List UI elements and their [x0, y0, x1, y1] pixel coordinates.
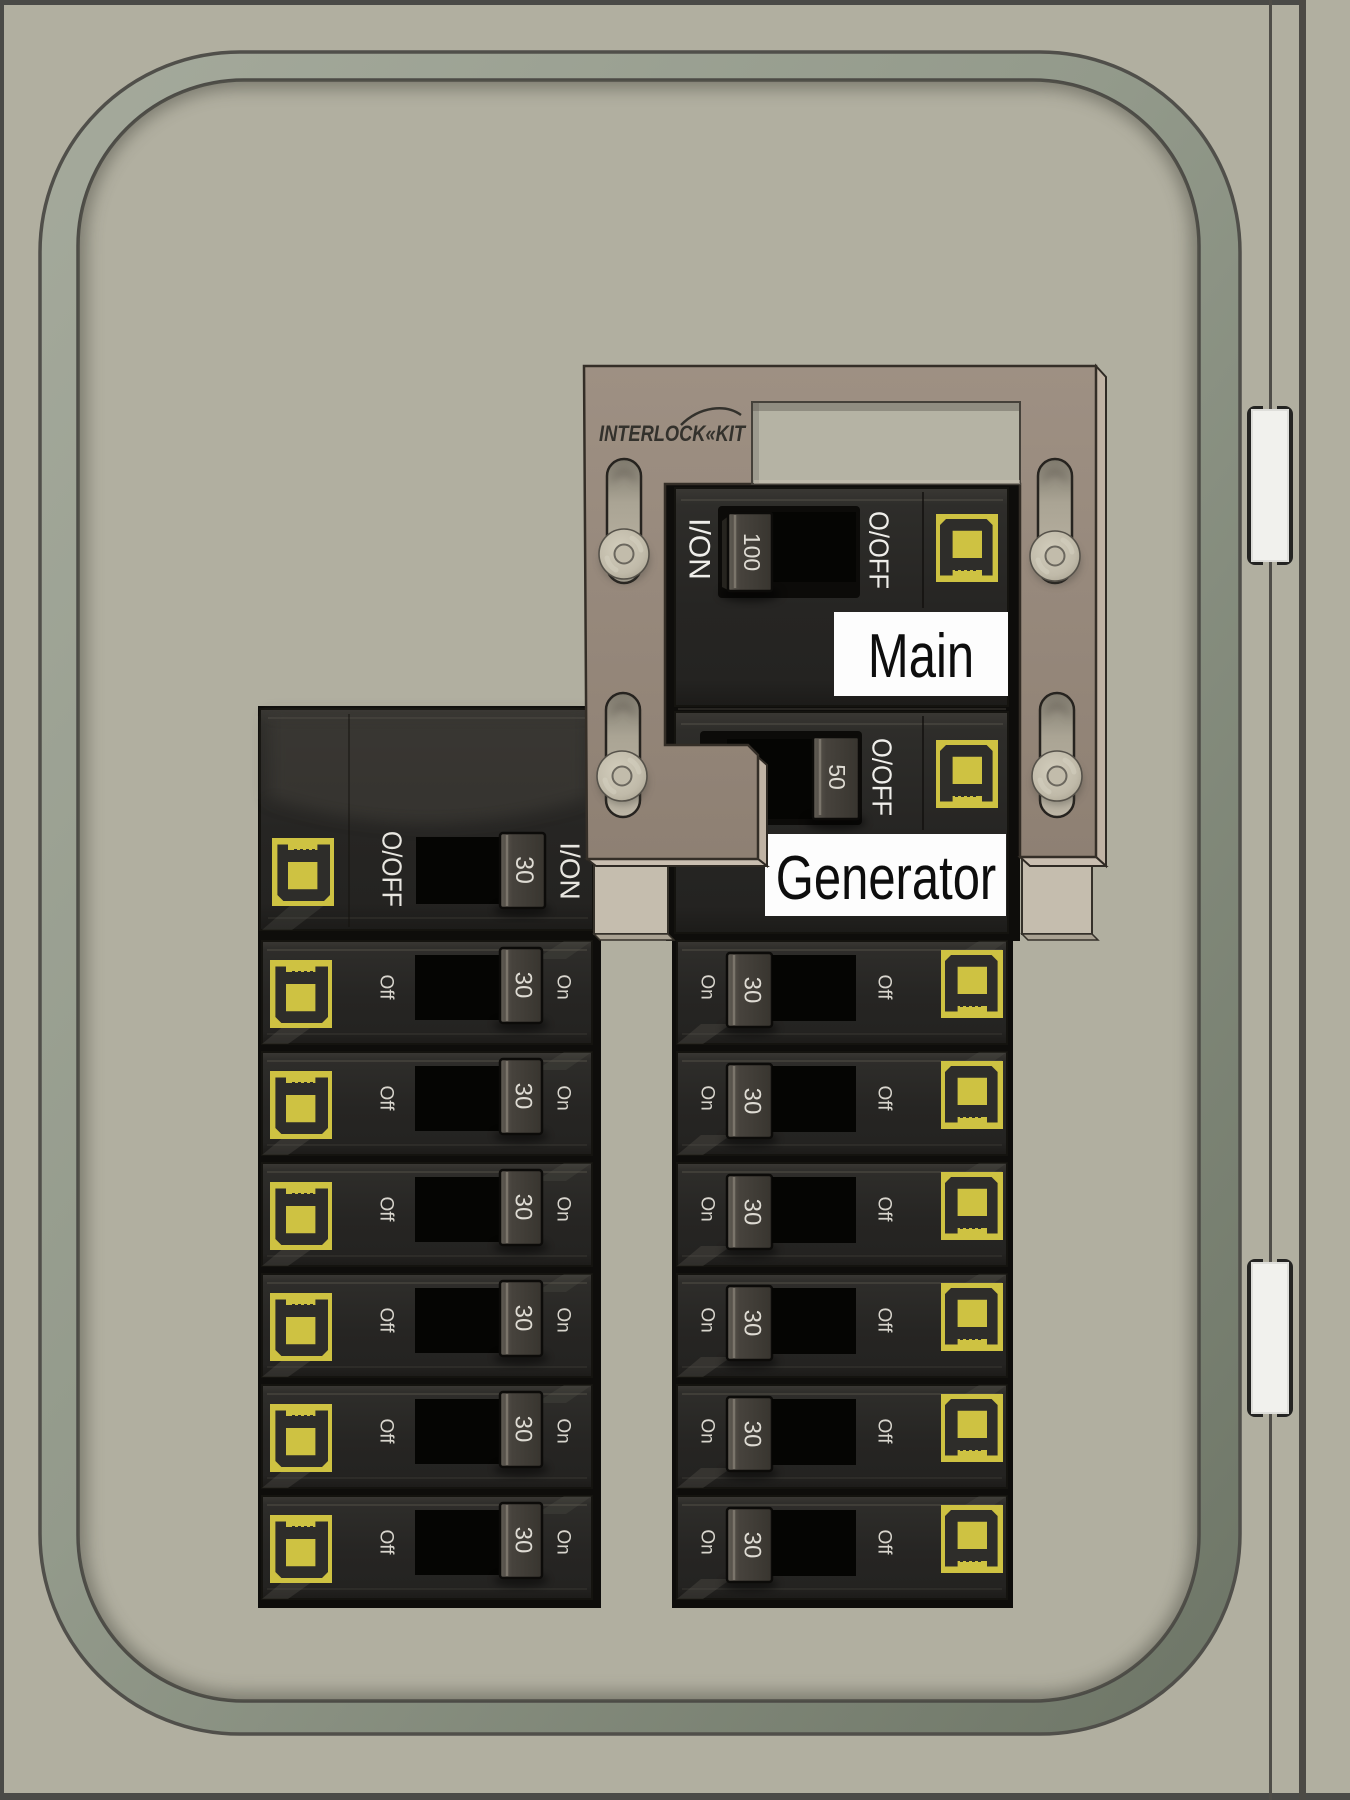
svg-text:30: 30: [510, 1083, 537, 1110]
svg-text:On: On: [553, 1085, 574, 1110]
svg-text:30: 30: [739, 1532, 766, 1559]
svg-text:Off: Off: [376, 1086, 397, 1112]
svg-text:Off: Off: [874, 975, 895, 1001]
svg-text:On: On: [697, 1085, 718, 1110]
svg-text:30: 30: [510, 1416, 537, 1443]
svg-text:Off: Off: [376, 1197, 397, 1223]
svg-text:30: 30: [739, 1088, 766, 1115]
svg-text:30: 30: [739, 1421, 766, 1448]
svg-text:Off: Off: [874, 1197, 895, 1223]
svg-text:On: On: [553, 1418, 574, 1443]
svg-text:30: 30: [510, 1194, 537, 1221]
svg-text:Main: Main: [868, 620, 974, 690]
svg-text:Generator: Generator: [776, 842, 996, 912]
svg-text:I/ON: I/ON: [555, 842, 586, 900]
svg-text:I/ON: I/ON: [683, 518, 716, 580]
svg-text:Off: Off: [376, 1308, 397, 1334]
svg-text:30: 30: [510, 972, 537, 999]
svg-text:Off: Off: [874, 1419, 895, 1445]
svg-text:O/OFF: O/OFF: [867, 738, 898, 816]
svg-text:On: On: [553, 974, 574, 999]
svg-text:Off: Off: [874, 1308, 895, 1334]
svg-text:Off: Off: [874, 1086, 895, 1112]
svg-text:Off: Off: [376, 1530, 397, 1556]
svg-text:30: 30: [510, 1527, 537, 1554]
svg-text:On: On: [697, 1196, 718, 1221]
svg-text:30: 30: [510, 1305, 537, 1332]
svg-text:Off: Off: [874, 1530, 895, 1556]
svg-text:30: 30: [739, 1310, 766, 1337]
svg-text:O/OFF: O/OFF: [377, 831, 408, 907]
svg-text:On: On: [553, 1307, 574, 1332]
svg-text:30: 30: [739, 1199, 766, 1226]
svg-text:On: On: [697, 1307, 718, 1332]
svg-text:On: On: [697, 1529, 718, 1554]
svg-text:Off: Off: [376, 1419, 397, 1445]
svg-text:On: On: [697, 1418, 718, 1443]
svg-text:O/OFF: O/OFF: [864, 511, 895, 589]
svg-text:100: 100: [739, 533, 765, 571]
svg-text:On: On: [553, 1196, 574, 1221]
svg-text:30: 30: [739, 977, 766, 1004]
svg-text:Off: Off: [376, 975, 397, 1001]
svg-text:On: On: [553, 1529, 574, 1554]
svg-text:50: 50: [824, 764, 850, 790]
svg-text:INTERLOCK«KIT: INTERLOCK«KIT: [599, 421, 746, 446]
svg-text:30: 30: [510, 856, 538, 884]
svg-text:On: On: [697, 974, 718, 999]
